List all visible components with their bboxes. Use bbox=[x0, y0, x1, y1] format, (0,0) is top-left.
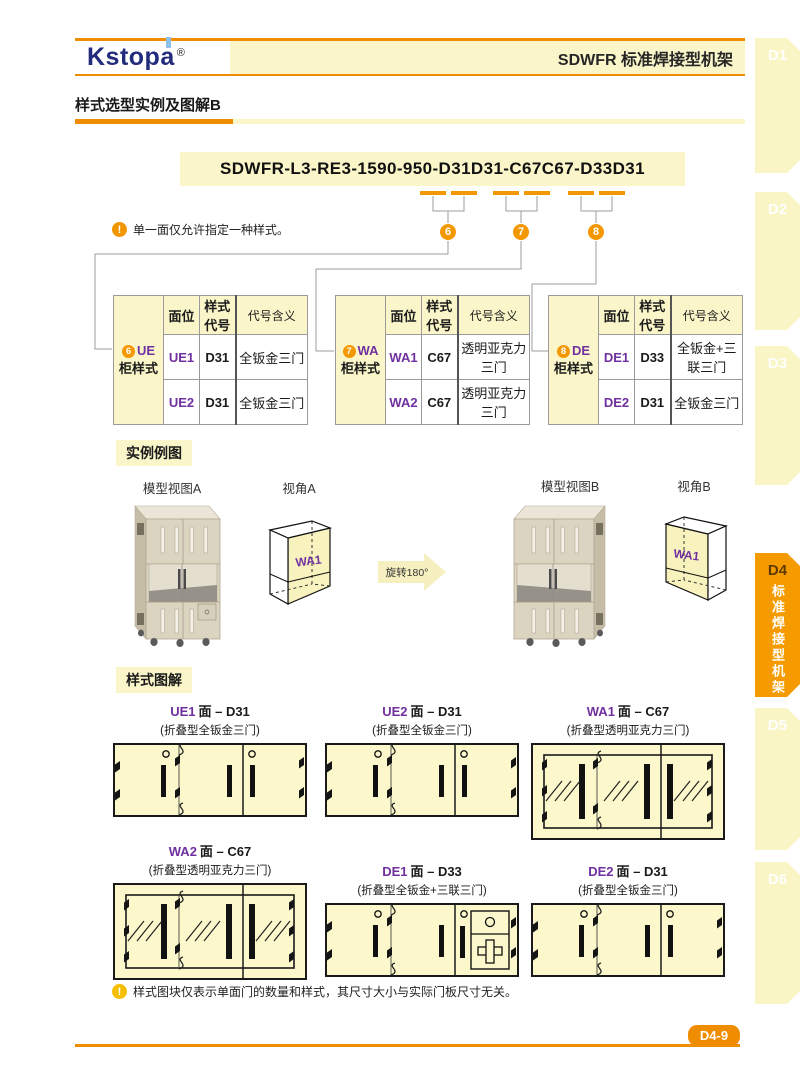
sidebar-tab-d1[interactable]: D1 bbox=[755, 38, 800, 173]
tab-label: D4 bbox=[768, 562, 787, 579]
code-underline bbox=[451, 191, 477, 195]
exclamation-icon: ! bbox=[112, 984, 127, 999]
sidebar-tab-d5[interactable]: D5 bbox=[755, 708, 800, 850]
model-code: SDWFR-L3-RE3-1590-950-D31D31-C67C67-D33D… bbox=[180, 152, 685, 186]
cell-face: WA1 bbox=[386, 335, 422, 380]
panel-title-tail: 面 – D31 bbox=[616, 864, 667, 879]
header-band: SDWFR 标准焊接型机架 bbox=[230, 41, 745, 74]
angle-b-wireframe: WA1 bbox=[658, 512, 736, 624]
cell-style-code: D31 bbox=[200, 335, 236, 380]
cell-style-code: C67 bbox=[422, 380, 458, 425]
section-title: 样式选型实例及图解B bbox=[75, 94, 221, 115]
tab-label: D3 bbox=[768, 355, 787, 372]
panel-subtitle: (折叠型透明亚克力三门) bbox=[528, 722, 728, 738]
door-diagram bbox=[531, 743, 725, 840]
col-header-style-code: 样式代号 bbox=[422, 296, 458, 335]
cell-meaning: 全钣金三门 bbox=[671, 380, 743, 425]
tab-label: D5 bbox=[768, 717, 787, 734]
panel-title-tail: 面 – C67 bbox=[618, 704, 669, 719]
face-group-name: 柜样式 bbox=[554, 361, 593, 376]
cell-meaning: 透明亚克力三门 bbox=[458, 380, 530, 425]
face-group-name: 柜样式 bbox=[341, 361, 380, 376]
cell-style-code: D33 bbox=[635, 335, 671, 380]
callout-8-icon: 8 bbox=[557, 345, 570, 358]
col-header-face: 面位 bbox=[599, 296, 635, 335]
style-table-ue: 6UE 柜样式 面位 样式代号 代号含义 UE1 D31 全钣金三门 UE2 D… bbox=[113, 295, 308, 425]
note-diagram-disclaimer-text: 样式图块仅表示单面门的数量和样式，其尺寸大小与实际门板尺寸无关。 bbox=[133, 983, 517, 1000]
cell-face: DE1 bbox=[599, 335, 635, 380]
callout-8-badge: 8 bbox=[588, 224, 604, 240]
panel-title-tail: 面 – D31 bbox=[198, 704, 249, 719]
cell-style-code: D31 bbox=[200, 380, 236, 425]
style-table-de: 8DE 柜样式 面位 样式代号 代号含义 DE1 D33 全钣金+三联三门 DE… bbox=[548, 295, 743, 425]
exclamation-icon: ! bbox=[112, 222, 127, 237]
panel-title: UE2面 – D31 bbox=[322, 701, 522, 720]
callout-6-badge: 6 bbox=[440, 224, 456, 240]
code-underline bbox=[420, 191, 446, 195]
page-header: Kstopa® SDWFR 标准焊接型机架 bbox=[75, 38, 745, 76]
callout-6-icon: 6 bbox=[122, 345, 135, 358]
example-section-label: 实例例图 bbox=[116, 440, 192, 466]
cabinet-model-a-image bbox=[116, 497, 228, 647]
panel-face-code: UE2 bbox=[382, 704, 407, 719]
tab-label: D1 bbox=[768, 47, 787, 64]
tab-label: D2 bbox=[768, 201, 787, 218]
cell-style-code: D31 bbox=[635, 380, 671, 425]
sidebar-tab-d3[interactable]: D3 bbox=[755, 346, 800, 485]
panel-title: DE1面 – D33 bbox=[322, 861, 522, 880]
panel-face-code: WA2 bbox=[169, 844, 197, 859]
face-group-code: UE bbox=[137, 343, 155, 358]
door-diagram bbox=[113, 743, 307, 817]
face-group-name: 柜样式 bbox=[119, 361, 158, 376]
footer-line bbox=[75, 1044, 740, 1047]
panel-title: UE1面 – D31 bbox=[110, 701, 310, 720]
note-diagram-disclaimer: ! 样式图块仅表示单面门的数量和样式，其尺寸大小与实际门板尺寸无关。 bbox=[112, 983, 517, 1000]
rotate-180-label: 旋转180° bbox=[386, 566, 429, 579]
door-panel-ue1: UE1面 – D31 (折叠型全钣金三门) bbox=[110, 701, 310, 822]
code-underline bbox=[568, 191, 594, 195]
cabinet-model-b-image bbox=[508, 497, 624, 647]
angle-b-label: 视角B bbox=[677, 476, 710, 495]
model-view-a-label: 模型视图A bbox=[143, 478, 201, 497]
page-number-badge: D4-9 bbox=[688, 1025, 740, 1046]
cell-meaning: 全钣金+三联三门 bbox=[671, 335, 743, 380]
col-header-style-code: 样式代号 bbox=[635, 296, 671, 335]
table-rowhead-de: 8DE 柜样式 bbox=[549, 296, 599, 425]
panel-title: WA2面 – C67 bbox=[110, 841, 310, 860]
col-header-face: 面位 bbox=[164, 296, 200, 335]
code-underline bbox=[599, 191, 625, 195]
panel-subtitle: (折叠型全钣金三门) bbox=[322, 722, 522, 738]
panel-face-code: WA1 bbox=[587, 704, 615, 719]
door-panel-de2: DE2面 – D31 (折叠型全钣金三门) bbox=[528, 861, 728, 982]
panel-face-code: UE1 bbox=[170, 704, 195, 719]
panel-subtitle: (折叠型全钣金三门) bbox=[528, 882, 728, 898]
code-underline bbox=[524, 191, 550, 195]
cell-meaning: 全钣金三门 bbox=[236, 335, 308, 380]
brand-logo: Kstopa® bbox=[87, 43, 185, 72]
col-header-face: 面位 bbox=[386, 296, 422, 335]
callout-7-badge: 7 bbox=[513, 224, 529, 240]
sidebar-tab-d2[interactable]: D2 bbox=[755, 192, 800, 330]
door-diagram bbox=[531, 903, 725, 977]
code-underline bbox=[493, 191, 519, 195]
tab-label: D6 bbox=[768, 871, 787, 888]
note-single-style: ! 单一面仅允许指定一种样式。 bbox=[112, 221, 289, 238]
door-panel-wa2: WA2面 – C67 (折叠型透明亚克力三门) bbox=[110, 841, 310, 985]
sidebar-tab-d6[interactable]: D6 bbox=[755, 862, 800, 1004]
cell-style-code: C67 bbox=[422, 335, 458, 380]
cell-meaning: 透明亚克力三门 bbox=[458, 335, 530, 380]
panel-title-tail: 面 – D33 bbox=[410, 864, 461, 879]
rotate-180-arrow: 旋转180° bbox=[378, 551, 448, 593]
panel-title: WA1面 – C67 bbox=[528, 701, 728, 720]
col-header-meaning: 代号含义 bbox=[458, 296, 530, 335]
table-rowhead-wa: 7WA 柜样式 bbox=[336, 296, 386, 425]
angle-a-wireframe: WA1 bbox=[260, 516, 340, 622]
col-header-meaning: 代号含义 bbox=[671, 296, 743, 335]
table-rowhead-ue: 6UE 柜样式 bbox=[114, 296, 164, 425]
logo-tick-mark bbox=[166, 37, 171, 48]
panel-face-code: DE2 bbox=[588, 864, 613, 879]
logo-box: Kstopa® bbox=[75, 41, 230, 74]
catalog-page: Kstopa® SDWFR 标准焊接型机架 样式选型实例及图解B SDWFR-L… bbox=[0, 0, 800, 1086]
page-title: SDWFR 标准焊接型机架 bbox=[558, 46, 733, 70]
panel-subtitle: (折叠型全钣金+三联三门) bbox=[322, 882, 522, 898]
style-table-wa: 7WA 柜样式 面位 样式代号 代号含义 WA1 C67 透明亚克力三门 WA2… bbox=[335, 295, 530, 425]
door-diagram bbox=[113, 883, 307, 980]
cell-face: DE2 bbox=[599, 380, 635, 425]
registered-mark: ® bbox=[177, 47, 186, 59]
panel-title-tail: 面 – D31 bbox=[410, 704, 461, 719]
model-view-b-label: 模型视图B bbox=[541, 476, 599, 495]
diagram-section-label: 样式图解 bbox=[116, 667, 192, 693]
door-panel-wa1: WA1面 – C67 (折叠型透明亚克力三门) bbox=[528, 701, 728, 845]
cell-face: WA2 bbox=[386, 380, 422, 425]
panel-title: DE2面 – D31 bbox=[528, 861, 728, 880]
face-group-code: DE bbox=[572, 343, 590, 358]
door-diagram bbox=[325, 903, 519, 977]
door-panel-ue2: UE2面 – D31 (折叠型全钣金三门) bbox=[322, 701, 522, 822]
panel-subtitle: (折叠型全钣金三门) bbox=[110, 722, 310, 738]
panel-face-code: DE1 bbox=[382, 864, 407, 879]
col-header-style-code: 样式代号 bbox=[200, 296, 236, 335]
cell-face: UE2 bbox=[164, 380, 200, 425]
tab-sub-label: 标准焊接型机架 bbox=[768, 584, 787, 696]
callout-7-icon: 7 bbox=[343, 345, 356, 358]
door-panel-de1: DE1面 – D33 (折叠型全钣金+三联三门) bbox=[322, 861, 522, 982]
panel-title-tail: 面 – C67 bbox=[200, 844, 251, 859]
cell-face: UE1 bbox=[164, 335, 200, 380]
col-header-meaning: 代号含义 bbox=[236, 296, 308, 335]
cell-meaning: 全钣金三门 bbox=[236, 380, 308, 425]
sidebar-tab-d4-active[interactable]: D4 标准焊接型机架 bbox=[755, 553, 800, 697]
door-diagram bbox=[325, 743, 519, 817]
note-single-style-text: 单一面仅允许指定一种样式。 bbox=[133, 221, 289, 238]
brand-logo-text: Kstopa bbox=[87, 43, 175, 71]
angle-a-label: 视角A bbox=[282, 478, 315, 497]
panel-subtitle: (折叠型透明亚克力三门) bbox=[110, 862, 310, 878]
face-group-code: WA bbox=[358, 343, 379, 358]
section-underline bbox=[75, 119, 745, 124]
